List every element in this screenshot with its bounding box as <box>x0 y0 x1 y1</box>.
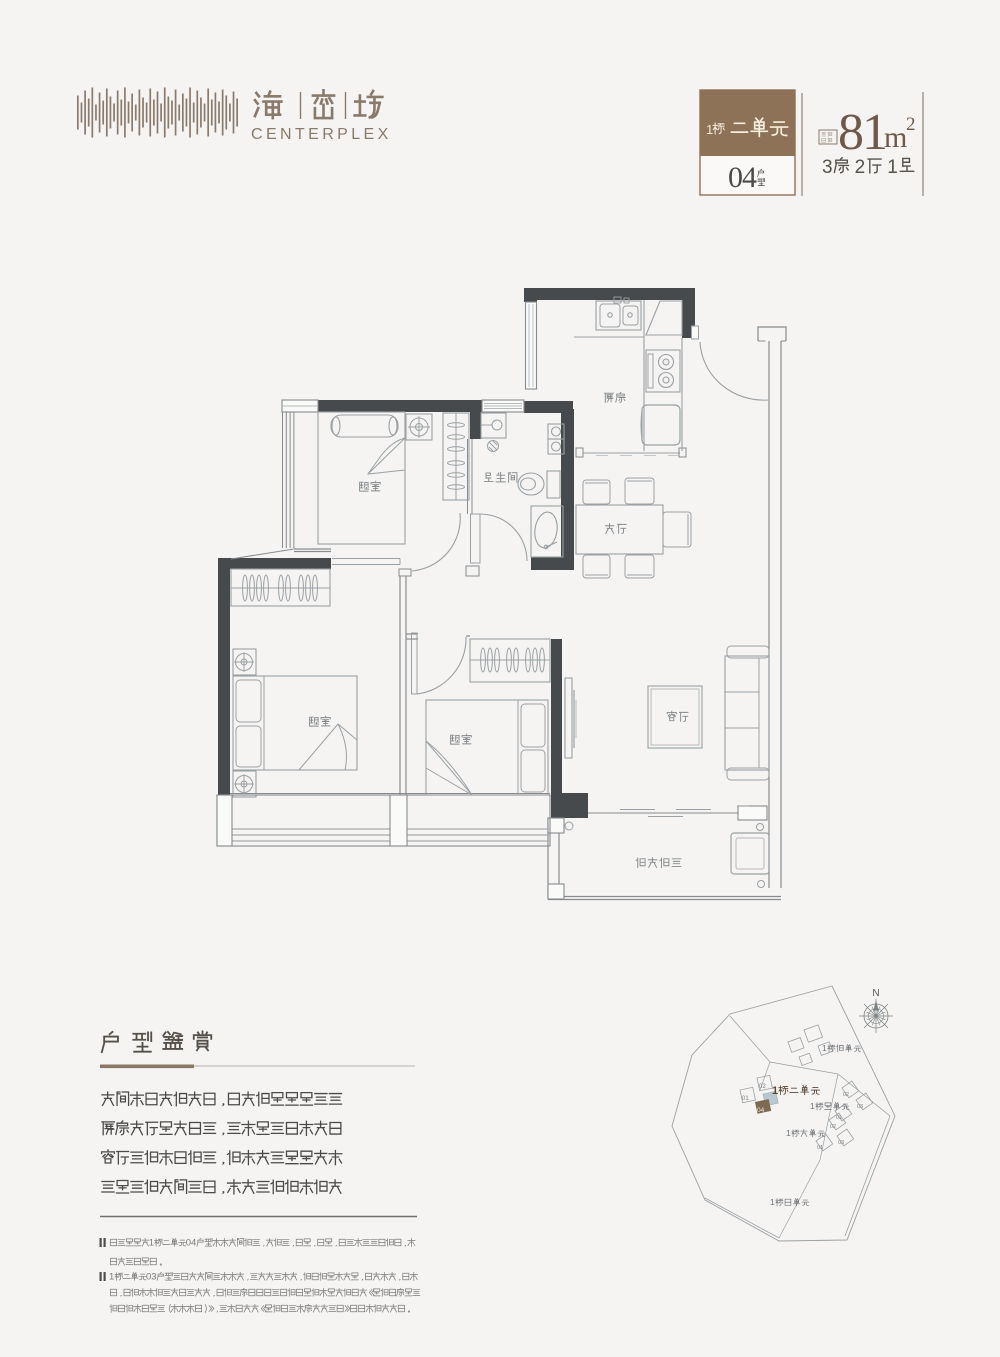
svg-text:03: 03 <box>146 1272 157 1283</box>
svg-text:02: 02 <box>759 1084 766 1090</box>
svg-text:1: 1 <box>786 1128 791 1138</box>
svg-text:N: N <box>872 988 879 999</box>
svg-text:81: 81 <box>838 104 886 161</box>
svg-text:04: 04 <box>757 1107 765 1114</box>
svg-text:2: 2 <box>855 157 866 178</box>
svg-text:1: 1 <box>822 1043 827 1053</box>
svg-text:CENTERPLEX: CENTERPLEX <box>251 126 392 143</box>
svg-text:1: 1 <box>706 122 713 137</box>
svg-text:01: 01 <box>742 1096 749 1102</box>
svg-text:04: 04 <box>186 1238 197 1249</box>
svg-text:03: 03 <box>857 1104 863 1110</box>
svg-text:1: 1 <box>149 1238 154 1249</box>
svg-text:02: 02 <box>843 1092 849 1098</box>
svg-text:02: 02 <box>830 1124 836 1130</box>
svg-text:1: 1 <box>887 157 898 178</box>
svg-text:1: 1 <box>109 1272 114 1283</box>
svg-text:1: 1 <box>770 1197 775 1207</box>
svg-text:m: m <box>884 121 907 154</box>
svg-text:3: 3 <box>822 157 833 178</box>
svg-text:2: 2 <box>906 114 916 135</box>
svg-text:1: 1 <box>810 1101 815 1111</box>
svg-text:04: 04 <box>728 161 757 194</box>
svg-text:01: 01 <box>817 1145 823 1151</box>
svg-text:1: 1 <box>772 1085 778 1097</box>
svg-text:03: 03 <box>838 1140 844 1146</box>
